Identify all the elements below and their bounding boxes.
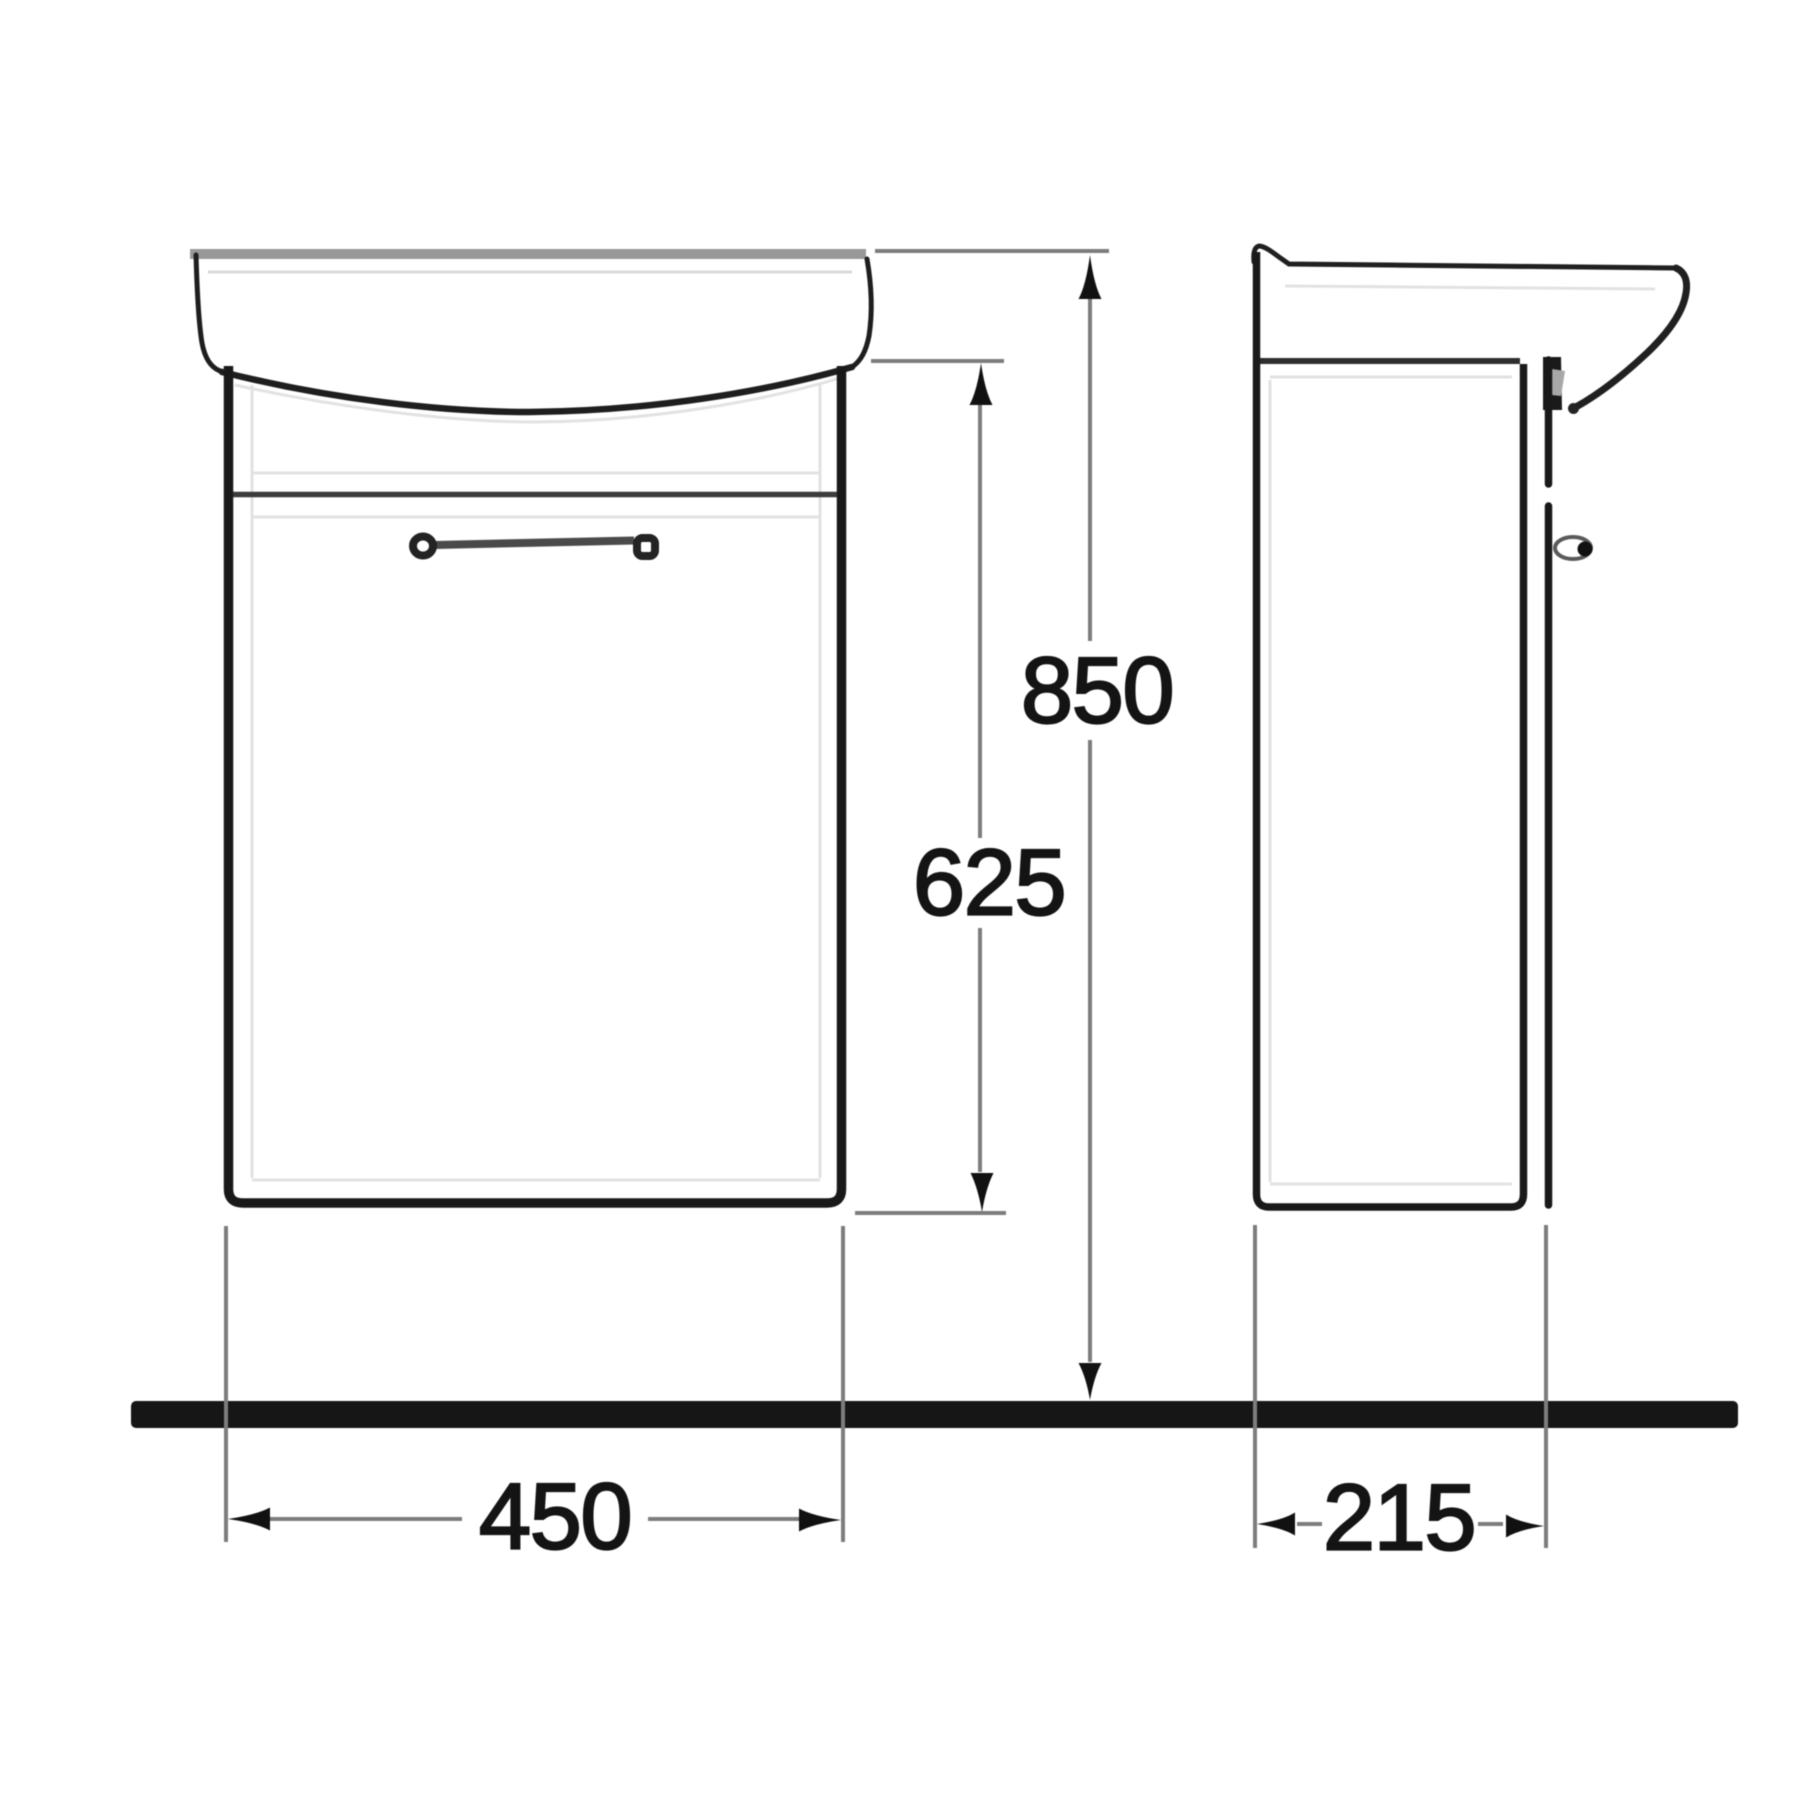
svg-text:215: 215 xyxy=(1323,1465,1475,1570)
svg-text:850: 850 xyxy=(1021,638,1173,743)
svg-text:625: 625 xyxy=(913,830,1065,935)
svg-text:450: 450 xyxy=(479,1464,631,1569)
